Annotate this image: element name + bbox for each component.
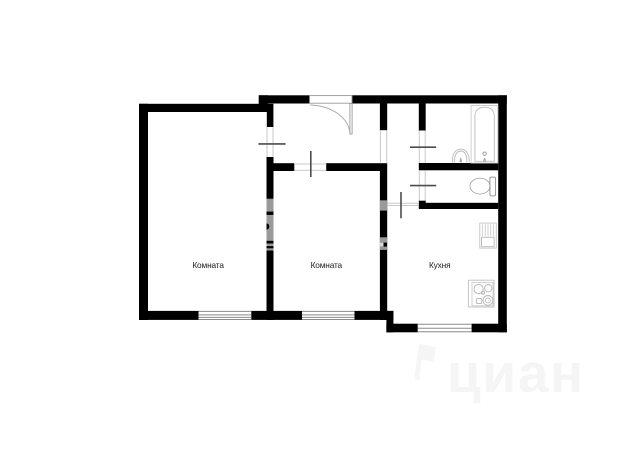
svg-text:Кухня: Кухня <box>429 260 450 270</box>
svg-text:Комната: Комната <box>192 260 224 270</box>
svg-text:Комната: Комната <box>311 260 343 270</box>
svg-text:циан: циан <box>447 342 585 404</box>
